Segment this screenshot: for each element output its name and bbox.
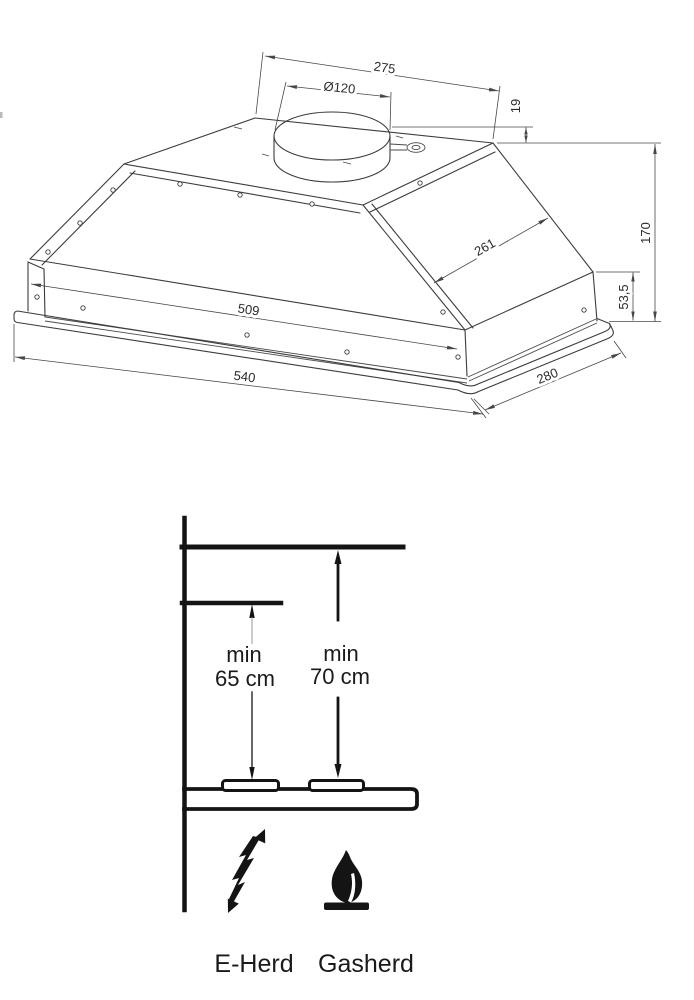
dim-base-depth-label: 280 xyxy=(534,365,560,387)
dim-collar-height-label: 19 xyxy=(508,99,523,113)
dim-top-width-label: 275 xyxy=(373,59,397,77)
dim-duct-diameter-label: Ø120 xyxy=(323,78,356,96)
dim-side-slant: 261 xyxy=(434,218,548,283)
dim-total-height-label: 170 xyxy=(638,222,653,244)
flame-icon xyxy=(324,850,369,910)
installation-diagram: min 70 cm min 65 cm xyxy=(0,470,694,1000)
min-65-line2: 65 cm xyxy=(215,666,275,691)
dim-min-70: min 70 cm xyxy=(310,550,370,778)
countertop xyxy=(184,781,417,810)
hob-gas xyxy=(310,781,364,791)
lightning-icon xyxy=(228,829,265,913)
hob-electric xyxy=(223,781,279,791)
label-gas-stove: Gasherd xyxy=(318,950,414,978)
rivet-marks xyxy=(234,127,403,164)
screw-holes xyxy=(35,181,586,359)
dim-body-width-label: 509 xyxy=(237,301,261,319)
dim-side-slant-label: 261 xyxy=(472,235,498,259)
cable-loop xyxy=(390,143,425,153)
dim-lower-height: 53,5 xyxy=(596,272,640,321)
label-electric-stove: E-Herd xyxy=(214,950,293,978)
dim-min-65: min 65 cm xyxy=(215,604,275,780)
duct-collar xyxy=(274,112,390,182)
min-70-line2: 70 cm xyxy=(310,664,370,689)
page: 275 Ø120 19 170 xyxy=(0,0,694,1000)
print-speck xyxy=(0,112,3,118)
stove-labels: E-Herd Gasherd xyxy=(214,950,414,978)
hood-body-outline xyxy=(28,118,597,383)
wall-and-hood-lines xyxy=(182,518,403,910)
dim-base-depth: 280 xyxy=(474,341,626,414)
dim-lower-height-label: 53,5 xyxy=(616,284,631,309)
min-65-line1: min xyxy=(226,642,261,667)
min-70-line1: min xyxy=(323,641,358,666)
hood-technical-drawing: 275 Ø120 19 170 xyxy=(0,0,694,470)
dim-base-width-label: 540 xyxy=(233,368,256,386)
